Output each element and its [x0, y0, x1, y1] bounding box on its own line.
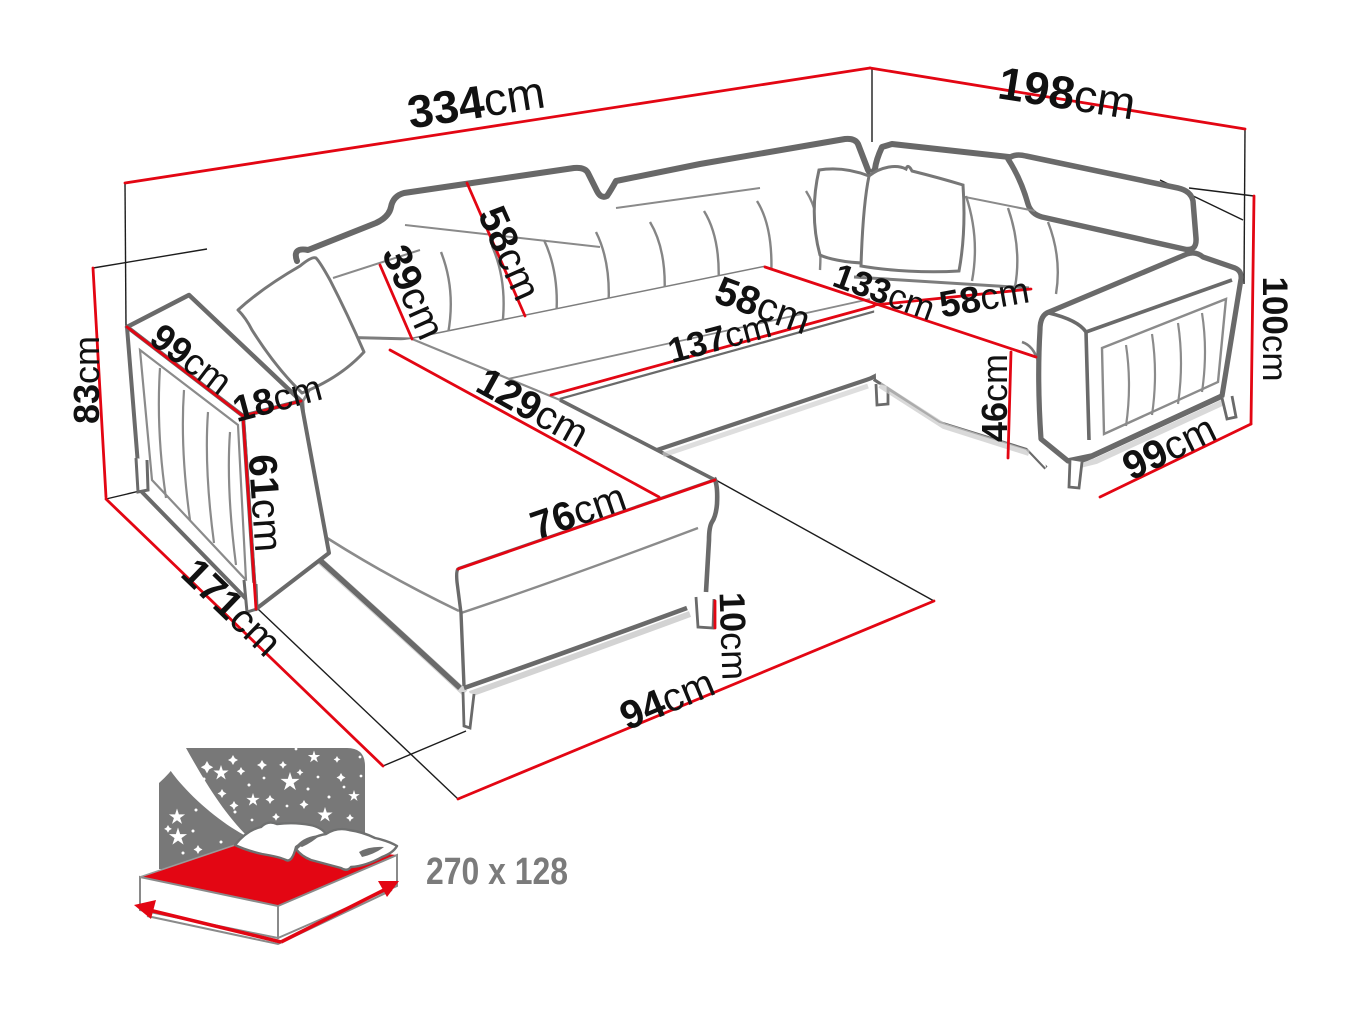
svg-text:270 x 128: 270 x 128 [426, 851, 568, 893]
svg-text:46cm: 46cm [974, 354, 1015, 442]
svg-text:61cm: 61cm [240, 453, 291, 554]
svg-text:83cm: 83cm [66, 336, 107, 424]
svg-text:10cm: 10cm [711, 591, 755, 680]
svg-text:100cm: 100cm [1255, 276, 1294, 381]
